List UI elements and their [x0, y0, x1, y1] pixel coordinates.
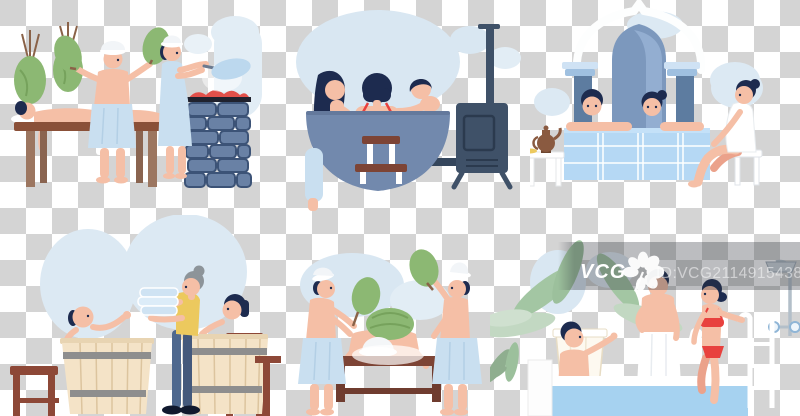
- hanging-venik-icon: [14, 30, 46, 104]
- stock-image-canvas: VCG ID:VCG211491543860: [0, 0, 800, 416]
- watermark-id-text: ID:VCG211491543860: [656, 265, 800, 283]
- scene-barrel-baths: [0, 215, 270, 416]
- bather-legs-outside: [305, 148, 323, 211]
- wooden-stool: [10, 366, 59, 416]
- tiled-pool: [564, 122, 710, 180]
- hot-tub: [306, 111, 450, 191]
- towel-stack: [138, 288, 178, 315]
- scene-hot-tub: [270, 0, 530, 215]
- barrel-bath: [60, 338, 154, 414]
- corner-plant: [490, 341, 521, 386]
- scene-hammam: [530, 0, 800, 215]
- scene-venik-treatment: [255, 215, 505, 416]
- wooden-chair: [255, 356, 281, 416]
- side-table-with-teapot: [530, 126, 564, 187]
- bather-man-head: [581, 89, 603, 116]
- scene-sauna-venik-massage: [0, 0, 270, 215]
